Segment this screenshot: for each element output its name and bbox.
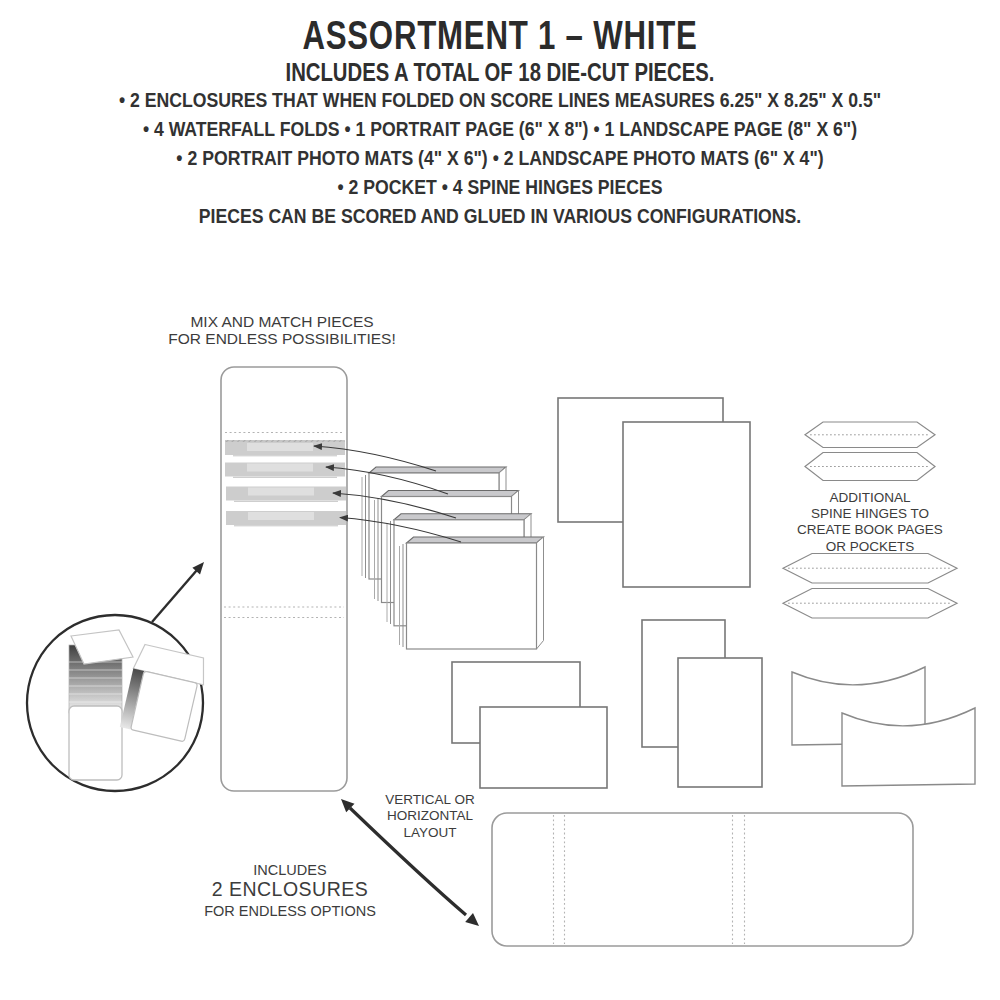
landscape-photo-mat-2 — [480, 707, 607, 788]
pocket-pieces — [792, 667, 975, 786]
diagram-artwork — [0, 0, 1000, 1000]
portrait-page — [623, 422, 750, 587]
waterfall-fold-4 — [400, 537, 544, 649]
enclosure-detail-inset — [27, 562, 209, 791]
portrait-photo-mats — [642, 620, 762, 787]
spine-hinges-top — [805, 422, 935, 481]
waterfall-folds-stack — [362, 467, 544, 649]
page-pieces — [558, 398, 750, 587]
spine-strip-3 — [226, 487, 346, 502]
spine-strip-4 — [226, 511, 346, 526]
vertical-enclosure — [221, 367, 347, 791]
spine-strip-2 — [225, 463, 345, 478]
horizontal-enclosure — [492, 813, 913, 946]
inset-pointer-arrow — [152, 562, 204, 622]
double-headed-arrow — [341, 799, 479, 926]
spine-strip-1 — [225, 440, 345, 456]
spine-hinges-bottom — [783, 554, 957, 619]
product-infographic: ASSORTMENT 1 – WHITE INCLUDES A TOTAL OF… — [0, 0, 1000, 1000]
landscape-photo-mats — [452, 662, 607, 788]
front-panel — [69, 706, 122, 780]
portrait-photo-mat-2 — [678, 658, 762, 787]
